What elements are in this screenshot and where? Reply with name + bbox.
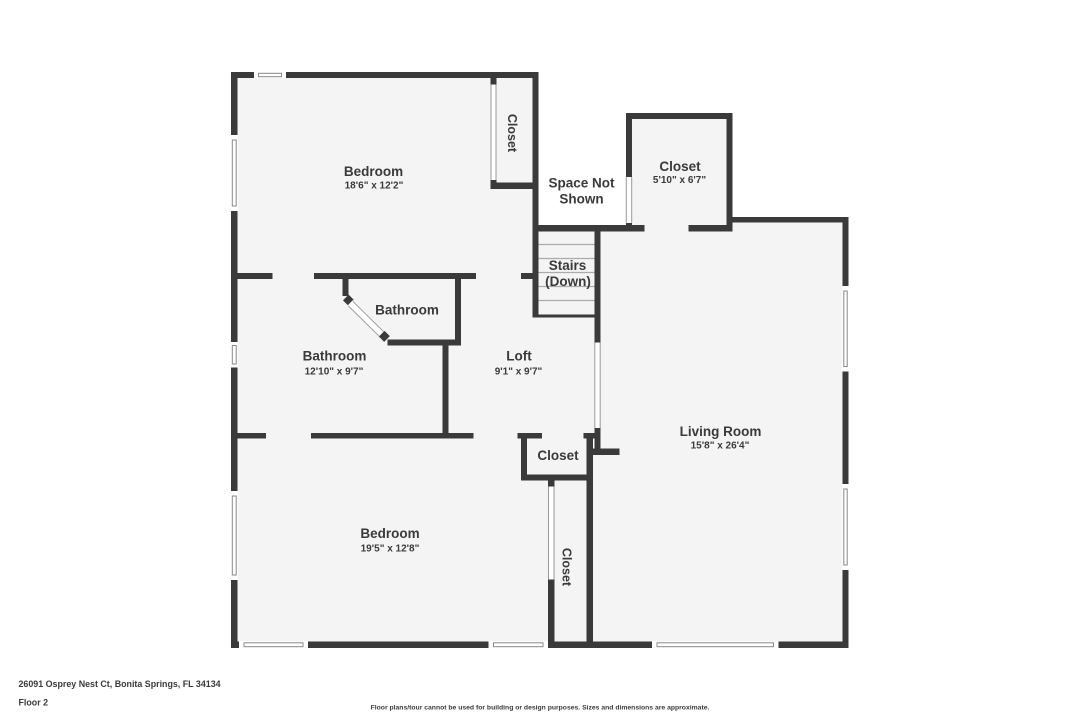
- svg-text:15'8" x 26'4": 15'8" x 26'4": [691, 440, 750, 451]
- svg-text:5'10" x 6'7": 5'10" x 6'7": [653, 175, 706, 186]
- svg-text:Loft: Loft: [506, 349, 532, 364]
- svg-text:Shown: Shown: [559, 192, 603, 207]
- svg-text:Living Room: Living Room: [680, 424, 762, 439]
- svg-text:(Down): (Down): [545, 274, 591, 289]
- svg-text:18'6" x 12'2": 18'6" x 12'2": [345, 181, 404, 192]
- svg-text:Closet: Closet: [659, 159, 701, 174]
- svg-text:Closet: Closet: [505, 114, 519, 153]
- svg-text:Stairs: Stairs: [549, 258, 587, 273]
- svg-text:Closet: Closet: [537, 448, 579, 463]
- svg-text:19'5" x 12'8": 19'5" x 12'8": [361, 544, 420, 555]
- svg-text:Space Not: Space Not: [548, 176, 615, 191]
- svg-text:Bathroom: Bathroom: [375, 303, 439, 318]
- svg-text:12'10" x 9'7": 12'10" x 9'7": [305, 367, 364, 378]
- svg-text:9'1" x 9'7": 9'1" x 9'7": [495, 367, 543, 378]
- svg-text:Bedroom: Bedroom: [360, 526, 419, 541]
- svg-text:Floor 2: Floor 2: [19, 698, 49, 708]
- svg-text:26091 Osprey Nest Ct, Bonita S: 26091 Osprey Nest Ct, Bonita Springs, FL…: [19, 679, 221, 689]
- svg-text:Bedroom: Bedroom: [344, 164, 403, 179]
- svg-text:Bathroom: Bathroom: [303, 349, 367, 364]
- svg-text:Floor plans/tour cannot be use: Floor plans/tour cannot be used for buil…: [371, 705, 710, 712]
- svg-text:Closet: Closet: [560, 548, 574, 587]
